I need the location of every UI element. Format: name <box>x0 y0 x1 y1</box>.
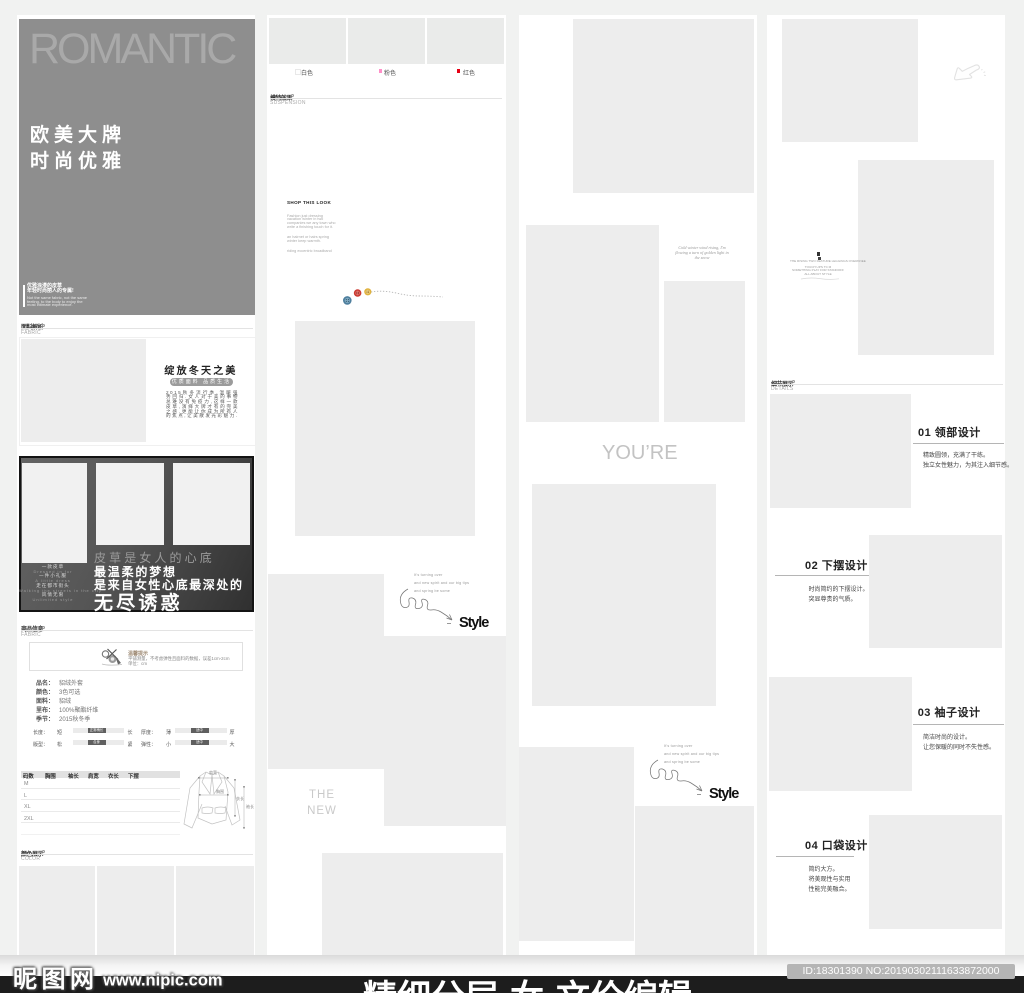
svg-text:肩宽: 肩宽 <box>209 769 217 775</box>
svg-text:衣长: 衣长 <box>236 795 244 801</box>
svg-text:胸围: 胸围 <box>216 788 224 794</box>
svg-text:袖长: 袖长 <box>246 803 254 809</box>
